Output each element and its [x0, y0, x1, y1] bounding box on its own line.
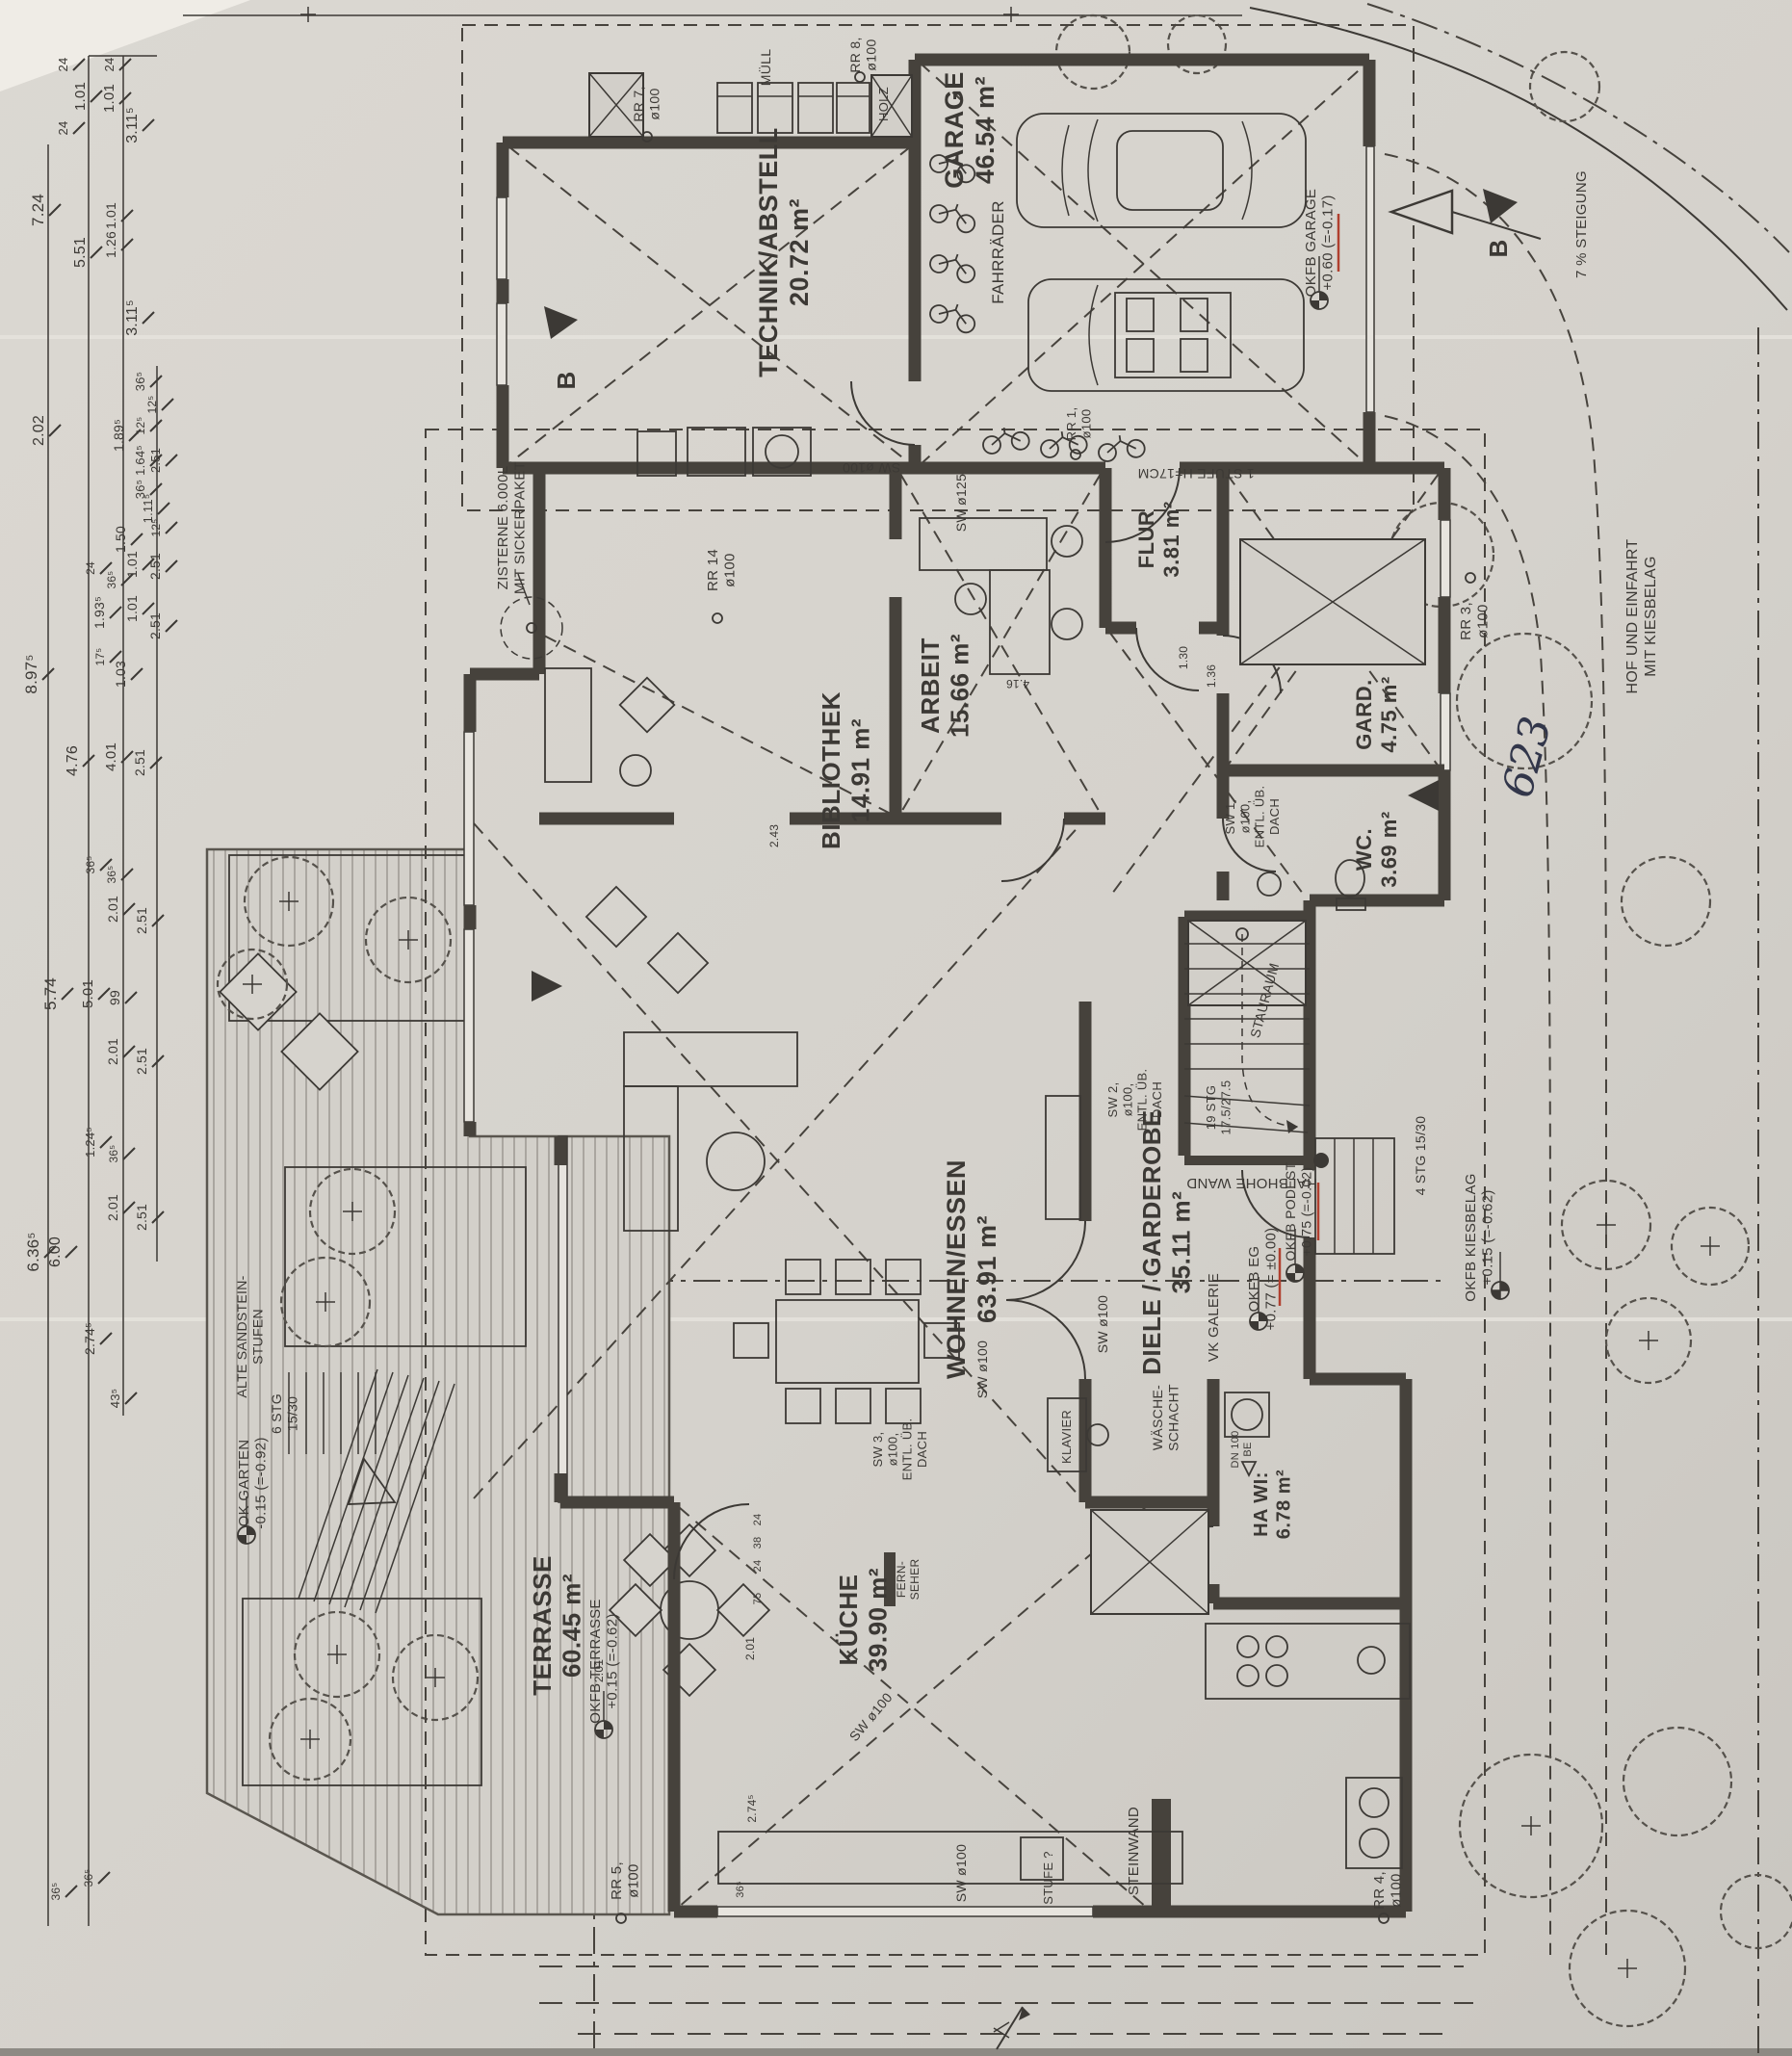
ann-sw125: SW ø125: [953, 474, 969, 532]
ann-b-right: B: [1484, 239, 1513, 257]
dim-a5: 1.01: [101, 84, 117, 113]
dim-a50: 2.51: [134, 1204, 149, 1231]
dim-a42: 99: [107, 990, 122, 1005]
stone-wall: [1152, 1799, 1171, 1909]
ann-rr4: RR 4,ø100: [1371, 1871, 1405, 1910]
dim-a2: 1.01: [72, 82, 89, 111]
ann-rr5: RR 5,ø100: [609, 1861, 642, 1900]
floor-plan-scan: TECHNIK/ABSTELL20.72 m²GARAGE46.54 m²FAH…: [0, 0, 1792, 2056]
garage-door: [1366, 146, 1374, 412]
dim-a9: 1.01: [103, 202, 118, 229]
dim-a28: 1.01: [124, 595, 140, 622]
dim-a53: 36⁵: [49, 1883, 63, 1901]
ann-zisterne: ZISTERNE 6.000LMIT SICKERPAKET: [495, 461, 529, 594]
ann-steigung: 7 % STEIGUNG: [1573, 170, 1590, 278]
ann-rr3: RR 3,ø100: [1458, 602, 1492, 640]
ann-stufe17: 1 STUFE H=17CM: [1137, 466, 1254, 481]
room-hawi: HA WI:6.78 m²: [1251, 1470, 1295, 1539]
ann-sw-wohnen: SW ø100: [974, 1340, 990, 1398]
dim-a31: 1.03: [113, 661, 128, 688]
dim-b12: 36⁵: [735, 1881, 746, 1897]
dim-a46: 36⁵: [107, 1145, 120, 1163]
dim-b4: 4.16: [1006, 677, 1029, 690]
ann-okfb-garage: OKFB GARAGE+0.60 (=-0.17): [1303, 189, 1337, 298]
dim-a47: 6.36⁵: [24, 1232, 42, 1271]
ann-sw-technik: SW ø100: [843, 460, 900, 476]
dim-b8: 24: [752, 1560, 764, 1573]
dim-a6: 3.11⁵: [124, 107, 141, 143]
dim-a34: 4.01: [103, 742, 119, 771]
dim-b3: 2.43: [767, 824, 781, 847]
ann-stg4: 4 STG 15/30: [1413, 1116, 1428, 1196]
ann-ok-garten: OK GARTEN-0.15 (=-0.92): [236, 1437, 270, 1529]
room-garage: GARAGE46.54 m²: [940, 71, 1000, 189]
ann-rr7: RR 7,ø100: [631, 86, 662, 121]
dim-a11: 3.11⁵: [124, 299, 141, 336]
dim-a8: 5.51: [72, 237, 89, 268]
dim-a7: 7.24: [29, 194, 47, 226]
dim-a17: 1.64⁵: [133, 445, 147, 476]
dim-a49: 2.01: [105, 1194, 120, 1221]
ann-klavier: KLAVIER: [1059, 1410, 1074, 1464]
dim-a39: 2.51: [134, 907, 149, 934]
dim-a22: 1.50: [113, 526, 128, 553]
ann-sw-kueche2: SW ø100: [953, 1844, 969, 1902]
dim-a10: 1.26: [103, 231, 118, 258]
dim-a38: 2.01: [105, 896, 120, 923]
dim-a41: 5.01: [80, 979, 96, 1008]
dim-b5: 2.01: [592, 1659, 606, 1682]
dim-b2: 1.36: [1205, 664, 1218, 688]
ann-holz: HOLZ: [876, 87, 891, 121]
ann-rr8: RR 8,ø100: [847, 37, 879, 72]
ann-stg19: 19 STG17.5/27.5: [1204, 1080, 1233, 1135]
dim-b6: 24: [752, 1514, 764, 1526]
room-gard: GARD.4.75 m²: [1352, 676, 1401, 752]
dim-a44: 2.51: [134, 1048, 149, 1075]
dim-a25: 24: [84, 561, 97, 575]
dim-a16: 1.89⁵: [111, 419, 126, 452]
dim-a32: 8.97⁵: [22, 654, 40, 693]
ann-b-top: B: [552, 371, 581, 389]
ann-vk: VK GALERIE: [1206, 1273, 1222, 1362]
ann-hof: HOF UND EINFAHRTMIT KIESBELAG: [1624, 539, 1659, 694]
dim-a35: 2.51: [132, 749, 147, 776]
dim-a51: 43⁵: [108, 1389, 122, 1408]
dim-b9: 75: [752, 1593, 764, 1605]
ann-okfb-kies: OKFB KIESBELAG+0.15 (=-0.62): [1463, 1173, 1496, 1301]
ann-steinwand: STEINWAND: [1126, 1807, 1142, 1895]
dim-a3: 24: [56, 121, 70, 136]
dim-b11: 2.74⁵: [745, 1794, 759, 1822]
dim-a30: 17⁵: [93, 648, 107, 666]
dim-b10: 2.01: [743, 1637, 757, 1660]
dim-a27: 1.93⁵: [91, 596, 107, 629]
dim-a33: 4.76: [65, 745, 81, 776]
ann-waesche: WÄSCHE-SCHACHT: [1150, 1384, 1182, 1451]
ann-fahrraeder: FAHRRÄDER: [989, 200, 1007, 304]
dim-a26: 36⁵: [105, 571, 118, 589]
ann-fernseher: FERN-SEHER: [895, 1559, 922, 1601]
room-flur: FLUR3.81 m²: [1134, 501, 1183, 577]
ann-stg6: 6 STG15/30: [269, 1393, 300, 1434]
ann-stufe: STUFE ?: [1041, 1851, 1055, 1905]
dim-a14: 12⁵: [134, 417, 147, 435]
dim-b7: 38: [752, 1537, 764, 1549]
dim-a37: 36⁵: [105, 866, 118, 884]
dim-a43: 2.01: [105, 1038, 120, 1065]
dim-a4: 24: [102, 58, 117, 72]
dim-a21: 12⁵: [149, 519, 163, 537]
dim-a45: 1.24⁵: [83, 1127, 97, 1158]
room-terrasse: TERRASSE60.45 m²: [528, 1555, 586, 1696]
dim-a15: 2.02: [31, 415, 47, 446]
room-kueche: KÜCHE39.90 m²: [834, 1568, 893, 1672]
ann-okfb-podest: OKFB PODEST+0.75 (=-0.02): [1283, 1161, 1314, 1261]
room-arbeit: ARBEIT15.66 m²: [916, 634, 974, 738]
dim-a36: 36⁵: [84, 856, 97, 874]
ann-sw-diele: SW ø100: [1095, 1295, 1110, 1353]
dim-a24: 2.51: [147, 553, 163, 580]
dim-a12: 36⁵: [133, 372, 147, 391]
dim-a52: 2.74⁵: [82, 1322, 97, 1355]
ann-rr14: RR 14ø100: [705, 549, 739, 591]
dim-a1: 24: [56, 58, 70, 72]
dim-a29: 2.51: [147, 612, 163, 639]
dim-a13: 12⁵: [145, 396, 159, 414]
dim-b1: 1.30: [1177, 646, 1190, 669]
ann-muell: MÜLL: [757, 49, 773, 87]
ann-rr1: RR 1,ø100: [1064, 407, 1093, 441]
dim-a54: 36⁵: [82, 1869, 95, 1887]
dim-a40: 5.74: [41, 977, 60, 1010]
